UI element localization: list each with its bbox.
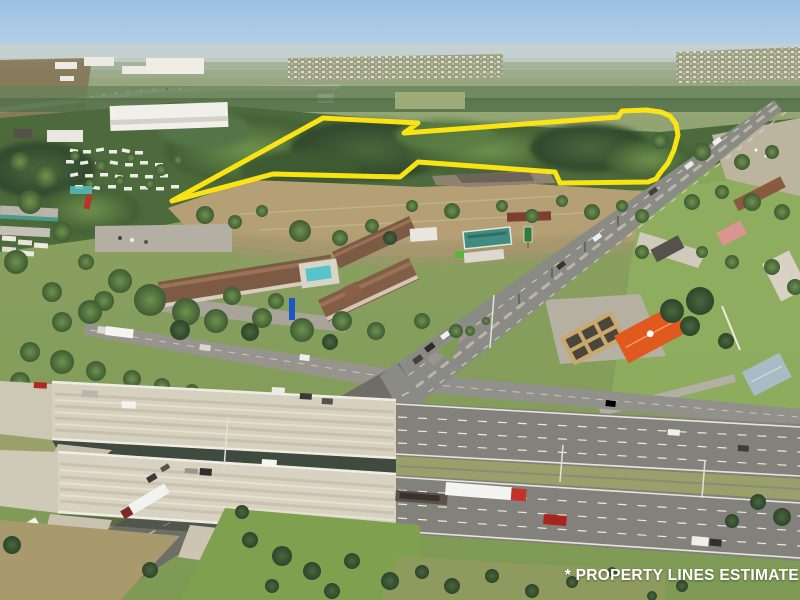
small-warehouse [47, 130, 83, 142]
aerial-photo-canvas [0, 0, 800, 600]
motel-back-lot [95, 224, 232, 252]
green-dumpster [455, 251, 464, 258]
property-lines-disclaimer: * PROPERTY LINES ESTIMATE [565, 567, 799, 585]
dark-shed [14, 129, 32, 138]
warehouse-building [110, 102, 229, 131]
motel-sign [289, 298, 295, 320]
distant-subdivision-west [288, 54, 503, 81]
park-pond [70, 186, 92, 194]
aerial-photo: * PROPERTY LINES ESTIMATE [0, 0, 800, 600]
corner-gas-canopy [410, 227, 438, 242]
distant-subdivision-east [676, 47, 800, 83]
red-pickup [543, 514, 567, 526]
